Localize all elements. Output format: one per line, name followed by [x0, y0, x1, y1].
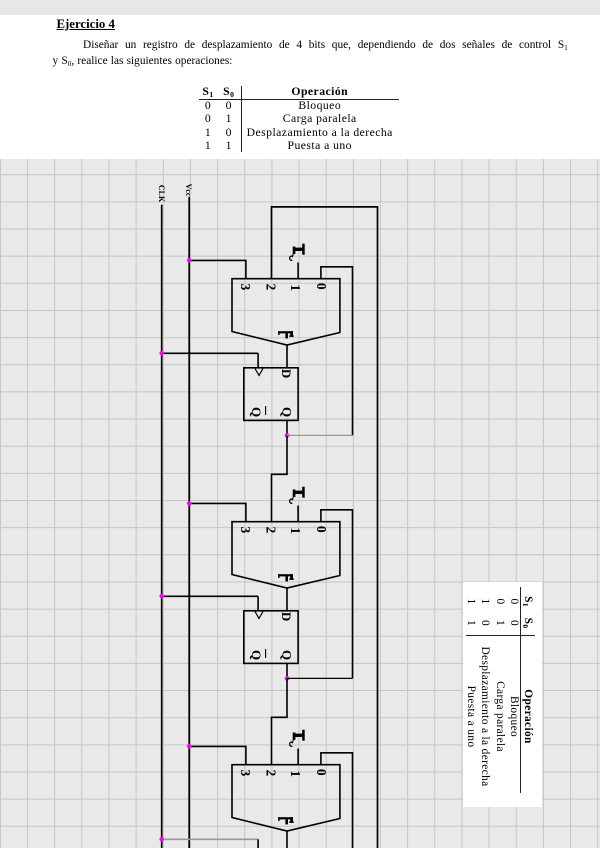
svg-text:1: 1 — [288, 284, 303, 291]
svg-text:2: 2 — [264, 283, 279, 290]
svg-text:Q: Q — [279, 649, 294, 659]
svg-text:2: 2 — [264, 526, 279, 533]
svg-text:D: D — [279, 611, 294, 620]
svg-text:1: 1 — [288, 770, 303, 777]
svg-text:3: 3 — [238, 526, 253, 533]
svg-text:0: 0 — [314, 525, 329, 532]
svg-text:Q: Q — [249, 406, 264, 416]
svg-text:3: 3 — [238, 283, 253, 290]
svg-text:D: D — [279, 368, 294, 377]
svg-text:3: 3 — [238, 769, 253, 776]
svg-text:Vcc: Vcc — [184, 183, 193, 196]
svg-text:2: 2 — [264, 769, 279, 776]
svg-text:0: 0 — [314, 768, 329, 775]
svg-text:1: 1 — [288, 527, 303, 534]
svg-text:0: 0 — [314, 282, 329, 289]
svg-text:Q: Q — [249, 649, 264, 659]
svg-text:Q: Q — [279, 406, 294, 416]
svg-text:CLK: CLK — [157, 184, 166, 202]
